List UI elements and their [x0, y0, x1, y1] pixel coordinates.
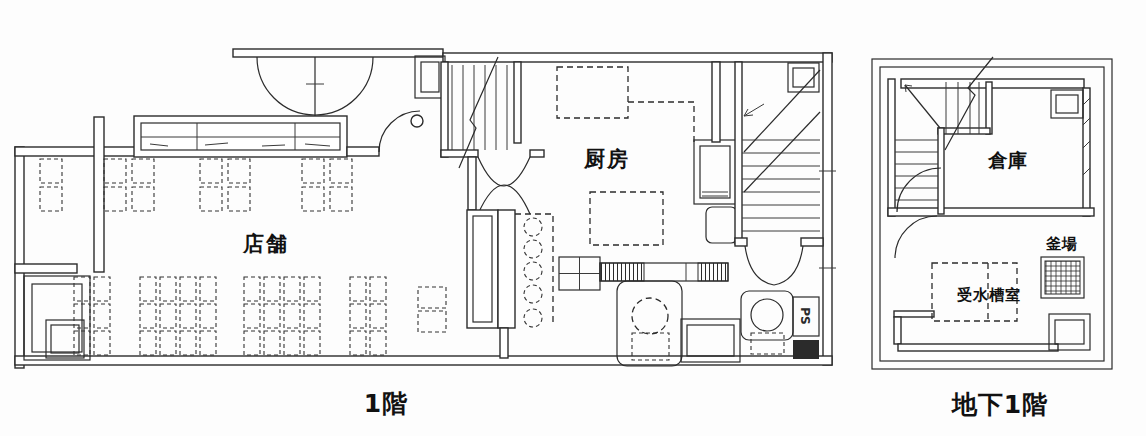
floor-plan-scan: PS 店舗 厨房 1階	[0, 0, 1146, 436]
basement-plan: 倉庫 釜場 受水槽室 地下1階	[872, 57, 1112, 419]
shop-counter	[134, 116, 347, 157]
shop-room-label: 店舗	[242, 232, 289, 256]
water-tank-room-label: 受水槽室	[956, 286, 1021, 304]
swing-door	[468, 150, 544, 214]
boiler-pit-equipment	[1041, 257, 1084, 298]
basement-walls	[872, 59, 1112, 369]
vestibule-door	[347, 56, 445, 156]
storage-room-label: 倉庫	[987, 149, 1028, 171]
first-floor-plan: PS 店舗 厨房 1階	[15, 49, 836, 418]
boiler-pit-label: 釜場	[1046, 235, 1078, 253]
entrance-door-arc	[257, 57, 373, 116]
first-floor-caption: 1階	[364, 389, 408, 418]
shop-tables	[40, 159, 386, 355]
kitchen-staircase	[735, 62, 823, 285]
kitchen-room-label: 厨房	[583, 147, 630, 171]
closet	[24, 276, 90, 360]
storage-closet	[1051, 90, 1083, 118]
entry-staircase	[441, 57, 521, 168]
basement-caption: 地下1階	[951, 390, 1048, 419]
pipe-shaft-label: PS	[798, 307, 812, 324]
pipe-shaft: PS	[793, 297, 819, 359]
service-counter	[418, 210, 553, 358]
